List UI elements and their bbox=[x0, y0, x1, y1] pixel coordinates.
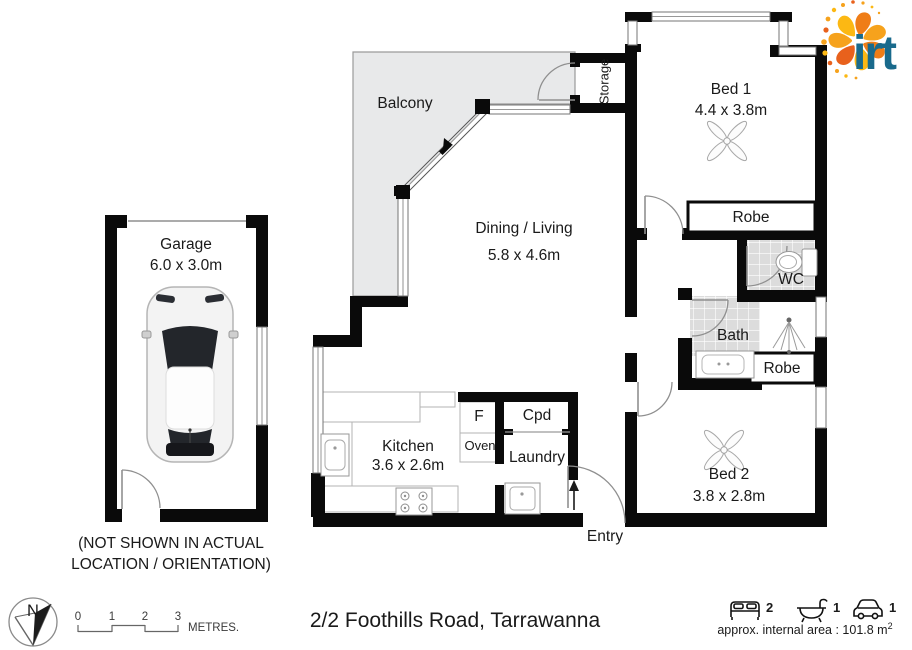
car-top-view bbox=[142, 287, 238, 462]
logo-text: irt bbox=[853, 26, 895, 81]
dining-label: Dining / Living bbox=[444, 220, 604, 238]
garage-note-line1: (NOT SHOWN IN ACTUAL bbox=[78, 535, 264, 552]
shower-head bbox=[773, 318, 805, 355]
balcony-label: Balcony bbox=[355, 95, 455, 113]
dining-dims: 5.8 x 4.6m bbox=[444, 247, 604, 265]
kitchen-dims: 3.6 x 2.6m bbox=[338, 457, 478, 475]
garage-note-line2: LOCATION / ORIENTATION) bbox=[71, 556, 271, 573]
bed1-label: Bed 1 bbox=[661, 81, 801, 99]
address-title: 2/2 Foothills Road, Tarrawanna bbox=[250, 609, 660, 633]
bath-label: Bath bbox=[703, 327, 763, 345]
stat-beds-count: 2 bbox=[766, 601, 773, 616]
vanity bbox=[696, 351, 754, 378]
bath-icon bbox=[797, 600, 827, 623]
stat-cars-count: 1 bbox=[889, 601, 896, 616]
garage-entry-door bbox=[122, 470, 160, 509]
bed2-label: Bed 2 bbox=[659, 466, 799, 484]
stove bbox=[396, 488, 432, 515]
garage-note: (NOT SHOWN IN ACTUAL LOCATION / ORIENTAT… bbox=[40, 533, 302, 575]
kitchen-label: Kitchen bbox=[338, 438, 478, 456]
floorplan-page: Garage 6.0 x 3.0m Balcony Storage Dining… bbox=[0, 0, 912, 650]
compass-n-label: N bbox=[24, 602, 42, 621]
ceiling-fan-bed1 bbox=[705, 119, 749, 163]
garage-label: Garage bbox=[121, 236, 251, 254]
bed1-dims: 4.4 x 3.8m bbox=[661, 102, 801, 120]
laundry-label: Laundry bbox=[504, 449, 570, 467]
bed2-door bbox=[638, 382, 672, 416]
bed2-dims: 3.8 x 2.8m bbox=[659, 488, 799, 506]
scale-tick-1: 1 bbox=[106, 611, 118, 624]
car-icon bbox=[854, 600, 882, 619]
scale-unit-label: METRES. bbox=[188, 622, 239, 635]
entry-label: Entry bbox=[575, 528, 635, 546]
robe1-label: Robe bbox=[691, 209, 811, 227]
oven-label: Oven bbox=[460, 439, 500, 454]
garage-dims: 6.0 x 3.0m bbox=[121, 257, 251, 275]
fridge-label: F bbox=[463, 408, 495, 426]
scale-tick-2: 2 bbox=[139, 611, 151, 624]
bath-tiles bbox=[690, 296, 760, 356]
scale-tick-0: 0 bbox=[72, 611, 84, 624]
area-label-text: approx. internal area : 101.8 m bbox=[717, 623, 887, 637]
cupboard-label: Cpd bbox=[505, 407, 569, 425]
stat-baths-count: 1 bbox=[833, 601, 840, 616]
robe2-label: Robe bbox=[752, 360, 812, 378]
bed1-door bbox=[645, 196, 683, 234]
internal-area-text: approx. internal area : 101.8 m2 bbox=[700, 621, 910, 638]
area-superscript: 2 bbox=[888, 621, 893, 631]
scale-tick-3: 3 bbox=[172, 611, 184, 624]
scale-bar-lines bbox=[78, 625, 178, 632]
wc-label: WC bbox=[771, 271, 811, 289]
laundry-tub bbox=[505, 483, 540, 514]
bed-icon bbox=[731, 602, 759, 620]
entry-arrow bbox=[569, 480, 579, 510]
storage-label: Storage bbox=[598, 46, 613, 116]
